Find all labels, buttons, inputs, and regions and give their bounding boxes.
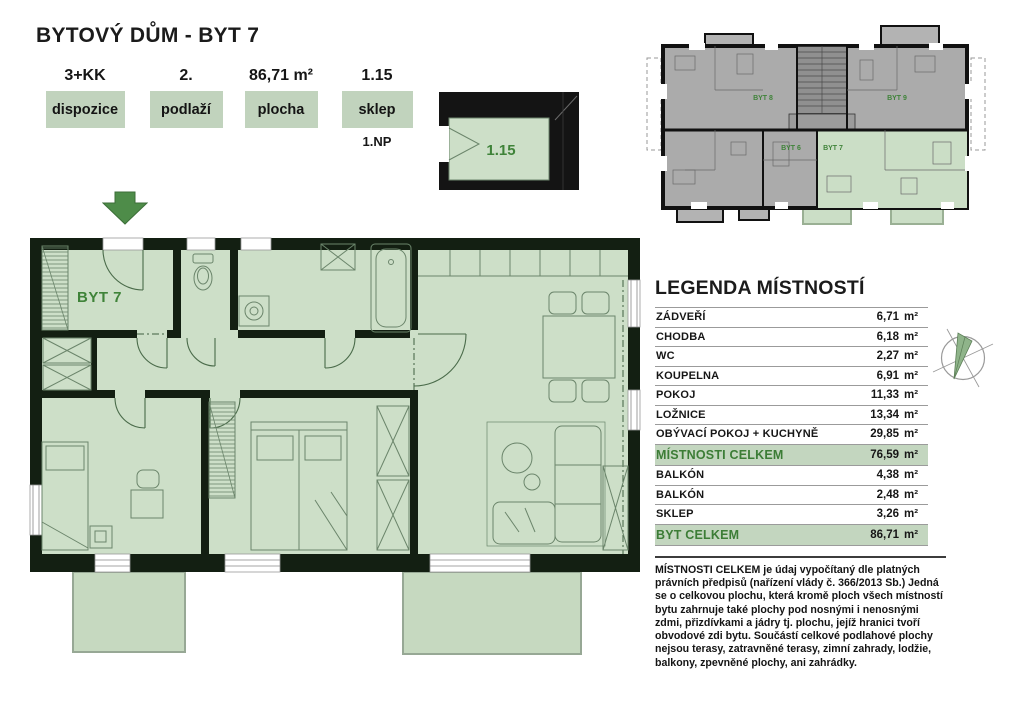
badge-note (136, 134, 236, 149)
badge-label: dispozice (46, 91, 125, 128)
badge-label: sklep (342, 91, 413, 128)
legend-room-label: BALKÓN (655, 469, 853, 481)
legend-area-unit: m² (899, 389, 928, 401)
badge-note: 1.NP (327, 134, 427, 149)
legend-row: WC 2,27 m² (655, 347, 928, 367)
legend-row: BYT CELKEM 86,71 m² (655, 525, 928, 547)
legend-area-unit: m² (899, 311, 928, 323)
badge-plocha: 86,71 m² plocha (231, 64, 331, 149)
legend-area-unit: m² (899, 331, 928, 343)
legend-area-unit: m² (899, 529, 928, 541)
balconies (73, 572, 581, 654)
legend-title: LEGENDA MÍSTNOSTÍ (655, 277, 928, 300)
badge-dispozice: 3+KK dispozice (35, 64, 135, 149)
legend-row: OBÝVACÍ POKOJ + KUCHYNĚ 29,85 m² (655, 425, 928, 445)
legend-area-unit: m² (899, 409, 928, 421)
page-title: BYTOVÝ DŮM - BYT 7 (36, 24, 259, 48)
legend-room-label: WC (655, 350, 853, 362)
legend-room-label: SKLEP (655, 508, 853, 520)
legend-section: LEGENDA MÍSTNOSTÍ ZÁDVEŘÍ 6,71 m² CHODBA… (655, 277, 928, 546)
overview-label-byt8: BYT 8 (753, 95, 773, 102)
badge-label: podlaží (150, 91, 223, 128)
legend-row: KOUPELNA 6,91 m² (655, 367, 928, 387)
badge-note (35, 134, 135, 149)
legend-room-label: CHODBA (655, 331, 853, 343)
legend-row: LOŽNICE 13,34 m² (655, 406, 928, 426)
legend-room-label: OBÝVACÍ POKOJ + KUCHYNĚ (655, 428, 853, 440)
legend-row: BALKÓN 4,38 m² (655, 466, 928, 486)
badge-value: 86,71 m² (231, 64, 331, 88)
legend-area-unit: m² (899, 449, 928, 461)
legend-room-area: 11,33 (853, 389, 899, 401)
apartment-label: BYT 7 (77, 289, 122, 306)
overview-label-byt7: BYT 7 (823, 145, 843, 152)
legend-row: ZÁDVEŘÍ 6,71 m² (655, 308, 928, 328)
legend-room-label: POKOJ (655, 389, 853, 401)
building-overview: BYT 8 BYT 9 BYT 6 BYT 7 (645, 20, 987, 232)
entrance-arrow-icon (102, 191, 148, 225)
legend-room-label: ZÁDVEŘÍ (655, 311, 853, 323)
building-overview-svg: BYT 8 BYT 9 BYT 6 BYT 7 (645, 20, 987, 232)
legend-room-area: 2,27 (853, 350, 899, 362)
legend-room-label: BALKÓN (655, 489, 853, 501)
legend-room-area: 86,71 (853, 529, 899, 541)
compass-icon (927, 322, 999, 394)
overview-label-byt6: BYT 6 (781, 145, 801, 152)
floorplan-svg: BYT 7 (25, 230, 645, 658)
floorplan-sheet: BYTOVÝ DŮM - BYT 7 3+KK dispozice 2. pod… (0, 0, 1024, 724)
legend-room-label: BYT CELKEM (655, 528, 853, 542)
badge-podlazi: 2. podlaží (136, 64, 236, 149)
legend-room-area: 4,38 (853, 469, 899, 481)
legend-row: SKLEP 3,26 m² (655, 505, 928, 525)
legend-area-unit: m² (899, 350, 928, 362)
legend-row: BALKÓN 2,48 m² (655, 486, 928, 506)
legend-room-area: 2,48 (853, 489, 899, 501)
legend-room-label: MÍSTNOSTI CELKEM (655, 448, 853, 462)
cellar-diagram-svg: 1.15 (437, 90, 582, 194)
legend-room-area: 6,71 (853, 311, 899, 323)
legend-room-area: 6,91 (853, 370, 899, 382)
badge-value: 3+KK (35, 64, 135, 88)
badge-note (231, 134, 331, 149)
legend-room-label: LOŽNICE (655, 409, 853, 421)
legend-area-unit: m² (899, 428, 928, 440)
legend-room-area: 6,18 (853, 331, 899, 343)
badge-value: 1.15 (327, 64, 427, 88)
legend-room-area: 3,26 (853, 508, 899, 520)
legend-room-area: 29,85 (853, 428, 899, 440)
legend-row: CHODBA 6,18 m² (655, 328, 928, 348)
cellar-room-number: 1.15 (486, 142, 515, 159)
legend-area-unit: m² (899, 508, 928, 520)
main-floorplan: BYT 7 (25, 230, 645, 658)
footnote-text: MÍSTNOSTI CELKEM je údaj vypočítaný dle … (655, 556, 946, 670)
overview-label-byt9: BYT 9 (887, 95, 907, 102)
cellar-diagram: 1.15 (437, 90, 582, 194)
legend-row: MÍSTNOSTI CELKEM 76,59 m² (655, 445, 928, 467)
legend-area-unit: m² (899, 370, 928, 382)
legend-room-area: 76,59 (853, 449, 899, 461)
badge-value: 2. (136, 64, 236, 88)
badge-label: plocha (245, 91, 318, 128)
legend-table: ZÁDVEŘÍ 6,71 m² CHODBA 6,18 m² WC 2,27 m… (655, 307, 928, 546)
legend-row: POKOJ 11,33 m² (655, 386, 928, 406)
legend-room-area: 13,34 (853, 409, 899, 421)
legend-area-unit: m² (899, 469, 928, 481)
legend-area-unit: m² (899, 489, 928, 501)
legend-room-label: KOUPELNA (655, 370, 853, 382)
badge-sklep: 1.15 sklep 1.NP (327, 64, 427, 149)
